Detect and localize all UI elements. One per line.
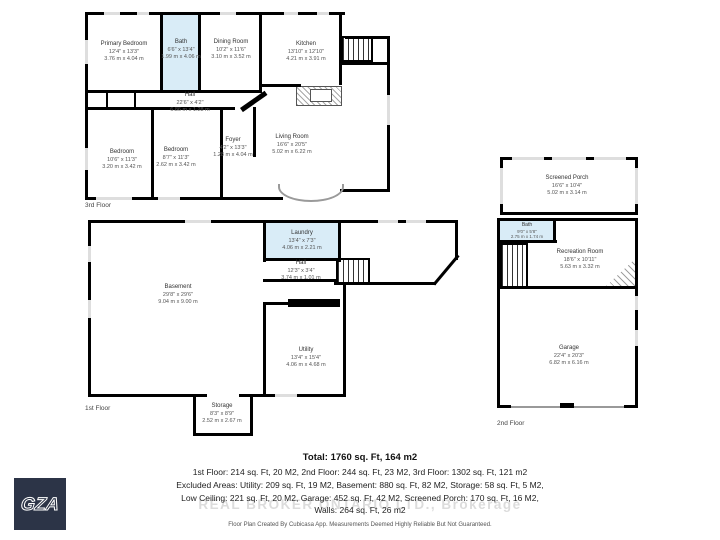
wall bbox=[85, 12, 345, 15]
window bbox=[512, 157, 544, 160]
room-label-living-room: Living Room 16'6" x 20'5" 5.02 m x 6.22 … bbox=[272, 134, 311, 156]
room-dims-ft: 16'6" x 20'5" bbox=[272, 142, 311, 149]
room-label-dining-room: Dining Room 10'2" x 11'6" 3.10 m x 3.52 … bbox=[211, 39, 250, 61]
wall bbox=[85, 107, 235, 110]
wall bbox=[151, 107, 154, 200]
summary-total: Total: 1760 sq. Ft, 164 m2 bbox=[0, 452, 720, 463]
room-dims-ft: 13'4" x 7'3" bbox=[282, 238, 321, 245]
wall bbox=[624, 405, 638, 408]
room-label-laundry: Laundry 13'4" x 7'3" 4.06 m x 2.21 m bbox=[282, 230, 321, 252]
door-opening bbox=[207, 394, 239, 397]
room-name: Storage bbox=[202, 403, 241, 411]
room-dims-m: 2.62 m x 3.42 m bbox=[156, 162, 195, 169]
wall bbox=[193, 433, 253, 436]
room-name: Kitchen bbox=[286, 41, 325, 49]
room-label-foyer: Foyer 4'2" x 13'3" 1.28 m x 4.04 m bbox=[213, 137, 252, 159]
room-dims-ft: 6'6" x 13'4" bbox=[161, 47, 200, 54]
room-name: Living Room bbox=[272, 134, 311, 142]
window bbox=[406, 220, 426, 223]
gza-logo: GZA bbox=[14, 478, 66, 530]
room-dims-m: 4.21 m x 3.91 m bbox=[286, 56, 325, 63]
room-label-bedroom-mid: Bedroom 8'7" x 11'3" 2.62 m x 3.42 m bbox=[156, 147, 195, 169]
room-dims-ft: 8'3" x 8'9" bbox=[202, 411, 241, 418]
room-name: Primary Bedroom bbox=[101, 41, 148, 49]
staircase bbox=[336, 258, 370, 284]
window bbox=[635, 168, 638, 204]
room-name: Screened Porch bbox=[545, 175, 588, 183]
window bbox=[85, 148, 88, 170]
room-label-utility: Utility 13'4" x 15'4" 4.06 m x 4.68 m bbox=[286, 347, 325, 369]
room-label-hall-3rd: Hall 22'6" x 4'2" 6.86 m x 1.28 m bbox=[170, 92, 209, 114]
wall bbox=[259, 12, 262, 90]
room-name: Garage bbox=[549, 345, 588, 353]
window bbox=[96, 197, 132, 200]
window bbox=[284, 12, 298, 15]
wall bbox=[193, 397, 196, 435]
window bbox=[88, 246, 91, 262]
floor-label-1st: 1st Floor bbox=[85, 405, 110, 412]
wall bbox=[500, 212, 638, 215]
summary-line-lowceiling: Low Ceiling: 221 sq. Ft, 20 M2, Garage: … bbox=[0, 492, 720, 505]
room-name: Basement bbox=[158, 284, 197, 292]
room-dims-ft: 22'4" x 20'3" bbox=[549, 353, 588, 360]
room-dims-ft: 29'8" x 29'6" bbox=[158, 292, 197, 299]
room-label-hall-1st: Hall 12'3" x 3'4" 3.74 m x 1.01 m bbox=[281, 260, 320, 282]
wall bbox=[345, 36, 390, 39]
wall bbox=[340, 189, 390, 192]
low-ceiling-hatch bbox=[606, 258, 636, 286]
floor-label-2nd: 2nd Floor bbox=[497, 420, 524, 427]
wall bbox=[253, 107, 256, 157]
wall bbox=[250, 397, 253, 435]
window bbox=[104, 12, 120, 15]
wall bbox=[339, 12, 342, 85]
staircase bbox=[500, 243, 528, 288]
room-label-garage: Garage 22'4" x 20'3" 6.82 m x 6.16 m bbox=[549, 345, 588, 367]
wall bbox=[497, 218, 638, 221]
window bbox=[387, 95, 390, 125]
room-dims-m: 1.99 m x 4.06 m bbox=[161, 54, 200, 61]
window bbox=[317, 12, 329, 15]
wall bbox=[343, 282, 346, 397]
room-name: Bedroom bbox=[156, 147, 195, 155]
room-label-bath-2nd: Bath 9'0" x 5'8" 2.75 m x 1.74 m bbox=[511, 222, 543, 240]
window bbox=[635, 330, 638, 346]
wall bbox=[288, 299, 340, 307]
room-dims-ft: 12'3" x 3'4" bbox=[281, 268, 320, 275]
area-summary: Total: 1760 sq. Ft, 164 m2 1st Floor: 21… bbox=[0, 452, 720, 517]
wall bbox=[134, 92, 136, 107]
window bbox=[137, 12, 149, 15]
window bbox=[378, 220, 398, 223]
wall bbox=[338, 220, 341, 262]
room-dims-ft: 4'2" x 13'3" bbox=[213, 145, 252, 152]
wall bbox=[106, 92, 108, 107]
window bbox=[88, 300, 91, 318]
wall bbox=[635, 218, 638, 408]
room-name: Dining Room bbox=[211, 39, 250, 47]
room-dims-m: 2.52 m x 2.67 m bbox=[202, 418, 241, 425]
window bbox=[220, 12, 236, 15]
wall bbox=[497, 218, 500, 408]
room-dims-ft: 13'10" x 12'10" bbox=[286, 49, 325, 56]
wall bbox=[263, 302, 266, 397]
window bbox=[185, 220, 211, 223]
room-dims-m: 1.28 m x 4.04 m bbox=[213, 152, 252, 159]
wall bbox=[497, 286, 638, 289]
room-label-bedroom-left: Bedroom 10'6" x 11'3" 3.20 m x 3.42 m bbox=[102, 149, 141, 171]
wall bbox=[263, 220, 266, 262]
wall bbox=[263, 302, 291, 305]
room-dims-ft: 10'6" x 11'3" bbox=[102, 157, 141, 164]
room-dims-m: 4.06 m x 4.68 m bbox=[286, 362, 325, 369]
room-name: Hall bbox=[170, 92, 209, 100]
room-name: Recreation Room bbox=[557, 249, 604, 257]
room-dims-m: 3.74 m x 1.01 m bbox=[281, 275, 320, 282]
room-dims-ft: 22'6" x 4'2" bbox=[170, 100, 209, 107]
wall bbox=[334, 282, 436, 285]
gza-logo-text: GZA bbox=[20, 494, 60, 515]
wall bbox=[553, 218, 556, 243]
room-label-kitchen: Kitchen 13'10" x 12'10" 4.21 m x 3.91 m bbox=[286, 41, 325, 63]
room-dims-ft: 10'2" x 11'6" bbox=[211, 47, 250, 54]
window bbox=[158, 197, 180, 200]
room-dims-m: 3.76 m x 4.04 m bbox=[101, 56, 148, 63]
wall bbox=[259, 84, 301, 87]
room-dims-m: 5.02 m x 6.22 m bbox=[272, 149, 311, 156]
room-label-recreation-room: Recreation Room 18'6" x 10'11" 5.63 m x … bbox=[557, 249, 604, 271]
wall bbox=[560, 403, 574, 408]
room-name: Bedroom bbox=[102, 149, 141, 157]
room-dims-m: 6.86 m x 1.28 m bbox=[170, 107, 209, 114]
room-dims-ft: 13'4" x 15'4" bbox=[286, 355, 325, 362]
window bbox=[85, 40, 88, 64]
wall bbox=[497, 405, 511, 408]
room-label-screened-porch: Screened Porch 16'6" x 10'4" 5.02 m x 3.… bbox=[545, 175, 588, 197]
room-dims-m: 5.02 m x 3.14 m bbox=[545, 190, 588, 197]
room-name: Bath bbox=[161, 39, 200, 47]
wall bbox=[497, 240, 557, 243]
kitchen-island bbox=[310, 89, 332, 102]
summary-line-walls: Walls: 264 sq. Ft, 26 m2 bbox=[0, 504, 720, 517]
room-dims-m: 2.75 m x 1.74 m bbox=[511, 234, 543, 240]
room-name: Foyer bbox=[213, 137, 252, 145]
room-dims-ft: 16'6" x 10'4" bbox=[545, 183, 588, 190]
room-name: Laundry bbox=[282, 230, 321, 238]
room-dims-ft: 18'6" x 10'11" bbox=[557, 257, 604, 264]
window bbox=[635, 296, 638, 310]
wall bbox=[88, 220, 458, 223]
room-dims-ft: 8'7" x 11'3" bbox=[156, 155, 195, 162]
room-label-primary-bedroom: Primary Bedroom 12'4" x 13'3" 3.76 m x 4… bbox=[101, 41, 148, 63]
wall bbox=[341, 62, 390, 65]
staircase bbox=[341, 36, 373, 62]
floor-label-3rd: 3rd Floor bbox=[85, 202, 111, 209]
room-label-basement: Basement 29'8" x 29'6" 9.04 m x 9.00 m bbox=[158, 284, 197, 306]
window bbox=[552, 157, 586, 160]
window bbox=[500, 168, 503, 204]
room-name: Utility bbox=[286, 347, 325, 355]
room-dims-m: 6.82 m x 6.16 m bbox=[549, 360, 588, 367]
room-label-storage: Storage 8'3" x 8'9" 2.52 m x 2.67 m bbox=[202, 403, 241, 425]
window bbox=[594, 157, 626, 160]
window bbox=[275, 394, 297, 397]
summary-line-excluded: Excluded Areas: Utility: 209 sq. Ft, 19 … bbox=[0, 479, 720, 492]
disclaimer-text: Floor Plan Created By Cubicasa App. Meas… bbox=[0, 522, 720, 528]
room-dims-m: 3.20 m x 3.42 m bbox=[102, 164, 141, 171]
room-dims-m: 3.10 m x 3.52 m bbox=[211, 54, 250, 61]
room-dims-m: 9.04 m x 9.00 m bbox=[158, 299, 197, 306]
room-dims-ft: 12'4" x 13'3" bbox=[101, 49, 148, 56]
room-dims-m: 5.63 m x 3.32 m bbox=[557, 264, 604, 271]
room-label-bath-3rd: Bath 6'6" x 13'4" 1.99 m x 4.06 m bbox=[161, 39, 200, 61]
room-dims-m: 4.06 m x 2.21 m bbox=[282, 245, 321, 252]
summary-line-floors: 1st Floor: 214 sq. Ft, 20 M2, 2nd Floor:… bbox=[0, 466, 720, 479]
room-name: Hall bbox=[281, 260, 320, 268]
